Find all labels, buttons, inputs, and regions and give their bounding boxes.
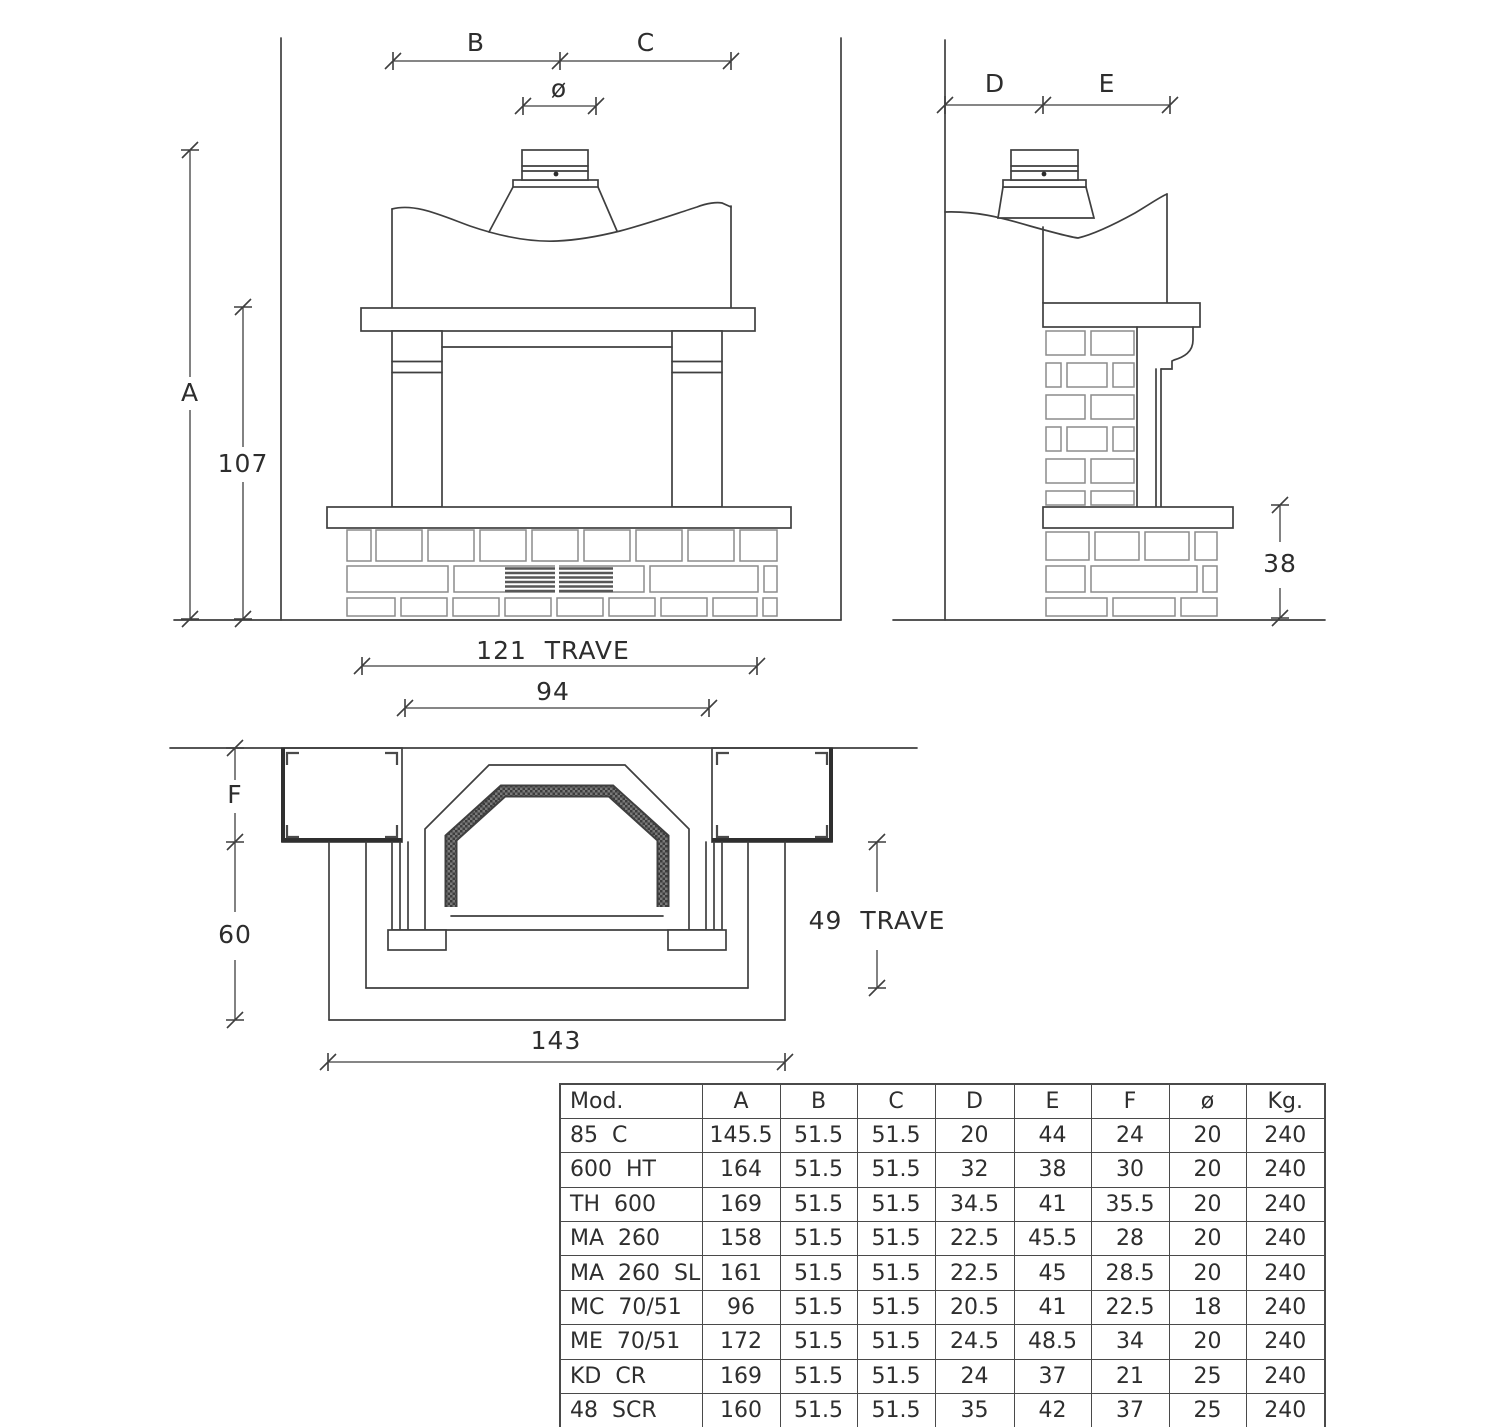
value-cell: 172 (702, 1325, 780, 1359)
value-cell: 161 (702, 1256, 780, 1290)
model-cell: 85 C (560, 1118, 702, 1152)
model-cell: MC 70/51 (560, 1290, 702, 1324)
value-cell: 28.5 (1091, 1256, 1169, 1290)
model-cell: ME 70/51 (560, 1325, 702, 1359)
value-cell: 24 (1091, 1118, 1169, 1152)
cone-right-edge (598, 187, 617, 231)
table-row: 600 HT16451.551.532383020240 (560, 1153, 1325, 1187)
dim-label-d: D (985, 69, 1005, 98)
table-header-row: Mod.ABCDEFøKg. (560, 1084, 1325, 1118)
value-cell: 51.5 (857, 1256, 935, 1290)
value-cell: 51.5 (780, 1222, 857, 1256)
value-cell: 42 (1014, 1394, 1091, 1427)
side-collar-dot (1042, 172, 1047, 177)
value-cell: 38 (1014, 1153, 1091, 1187)
table-row: ME 70/5117251.551.524.548.53420240 (560, 1325, 1325, 1359)
value-cell: 145.5 (702, 1118, 780, 1152)
model-cell: TH 600 (560, 1187, 702, 1221)
hood-top-wavy-edge (392, 203, 731, 242)
value-cell: 22.5 (935, 1222, 1014, 1256)
cone-left-edge (489, 187, 513, 232)
dim-label-38: 38 (1263, 549, 1297, 578)
dim-label-60: 60 (218, 920, 252, 949)
side-hearth-slab (1043, 507, 1233, 528)
table-row: 85 C145.551.551.520442420240 (560, 1118, 1325, 1152)
table-header-4: D (935, 1084, 1014, 1118)
table-row: KD CR16951.551.524372125240 (560, 1359, 1325, 1393)
value-cell: 24 (935, 1359, 1014, 1393)
front-view: B C ø A 107 121 TRAVE 94 (174, 28, 841, 717)
plan-left-block (282, 748, 402, 842)
value-cell: 18 (1169, 1290, 1246, 1324)
plan-right-column-footprint (668, 930, 726, 950)
value-cell: 37 (1014, 1359, 1091, 1393)
base-brick-row (347, 530, 777, 561)
table-row: MA 26015851.551.522.545.52820240 (560, 1222, 1325, 1256)
value-cell: 240 (1246, 1153, 1325, 1187)
dim-label-49-trave: 49 TRAVE (809, 906, 946, 935)
value-cell: 20 (1169, 1256, 1246, 1290)
model-cell: 600 HT (560, 1153, 702, 1187)
value-cell: 51.5 (857, 1359, 935, 1393)
value-cell: 51.5 (857, 1118, 935, 1152)
dim-label-e: E (1099, 69, 1116, 98)
flue-flange (513, 180, 598, 187)
value-cell: 51.5 (857, 1290, 935, 1324)
dim-label-f: F (227, 780, 242, 809)
flue-collar-dot (554, 172, 559, 177)
side-mantel-shelf (1043, 303, 1200, 327)
drawing-svg: B C ø A 107 121 TRAVE 94 (0, 0, 1500, 1080)
value-cell: 51.5 (780, 1290, 857, 1324)
fireplace-technical-drawing-page: B C ø A 107 121 TRAVE 94 (0, 0, 1500, 1427)
dim-label-c: C (637, 28, 655, 57)
plan-right-block (712, 748, 832, 842)
value-cell: 51.5 (780, 1359, 857, 1393)
value-cell: 240 (1246, 1256, 1325, 1290)
value-cell: 22.5 (1091, 1290, 1169, 1324)
table-header-2: B (780, 1084, 857, 1118)
value-cell: 164 (702, 1153, 780, 1187)
value-cell: 51.5 (857, 1394, 935, 1427)
value-cell: 20 (1169, 1118, 1246, 1152)
hearth-slab (327, 507, 791, 528)
left-column (392, 331, 442, 507)
value-cell: 21 (1091, 1359, 1169, 1393)
table-header-0: Mod. (560, 1084, 702, 1118)
value-cell: 51.5 (857, 1325, 935, 1359)
right-column (672, 331, 722, 507)
table-header-6: F (1091, 1084, 1169, 1118)
table-row: MA 260 SL16151.551.522.54528.520240 (560, 1256, 1325, 1290)
value-cell: 20 (1169, 1325, 1246, 1359)
table-row: TH 60016951.551.534.54135.520240 (560, 1187, 1325, 1221)
value-cell: 24.5 (935, 1325, 1014, 1359)
side-flue-flange (1003, 180, 1086, 187)
value-cell: 41 (1014, 1187, 1091, 1221)
dim-label-94: 94 (536, 677, 570, 706)
dim-label-a: A (181, 378, 199, 407)
table-header-5: E (1014, 1084, 1091, 1118)
value-cell: 51.5 (857, 1153, 935, 1187)
value-cell: 96 (702, 1290, 780, 1324)
value-cell: 20 (1169, 1187, 1246, 1221)
value-cell: 20 (935, 1118, 1014, 1152)
value-cell: 240 (1246, 1118, 1325, 1152)
value-cell: 51.5 (780, 1394, 857, 1427)
value-cell: 48.5 (1014, 1325, 1091, 1359)
table-row: MC 70/519651.551.520.54122.518240 (560, 1290, 1325, 1324)
value-cell: 22.5 (935, 1256, 1014, 1290)
dimension-table: Mod.ABCDEFøKg.85 C145.551.551.5204424202… (559, 1083, 1326, 1427)
value-cell: 30 (1091, 1153, 1169, 1187)
value-cell: 32 (935, 1153, 1014, 1187)
value-cell: 51.5 (857, 1222, 935, 1256)
value-cell: 240 (1246, 1394, 1325, 1427)
model-cell: MA 260 SL (560, 1256, 702, 1290)
dim-label-diameter: ø (551, 74, 567, 103)
value-cell: 28 (1091, 1222, 1169, 1256)
value-cell: 44 (1014, 1118, 1091, 1152)
base-brick-row (347, 598, 777, 616)
value-cell: 25 (1169, 1359, 1246, 1393)
dim-label-121-trave: 121 TRAVE (476, 636, 630, 665)
value-cell: 169 (702, 1359, 780, 1393)
value-cell: 37 (1091, 1394, 1169, 1427)
value-cell: 51.5 (780, 1118, 857, 1152)
table-header-3: C (857, 1084, 935, 1118)
value-cell: 34 (1091, 1325, 1169, 1359)
value-cell: 35.5 (1091, 1187, 1169, 1221)
table-header-7: ø (1169, 1084, 1246, 1118)
value-cell: 20 (1169, 1153, 1246, 1187)
value-cell: 45 (1014, 1256, 1091, 1290)
model-cell: MA 260 (560, 1222, 702, 1256)
table-header-8: Kg. (1246, 1084, 1325, 1118)
model-cell: 48 SCR (560, 1394, 702, 1427)
value-cell: 20 (1169, 1222, 1246, 1256)
side-base-bricks (1046, 532, 1217, 616)
firebox-lining-hatch (451, 791, 663, 907)
value-cell: 34.5 (935, 1187, 1014, 1221)
value-cell: 51.5 (780, 1325, 857, 1359)
table-header-1: A (702, 1084, 780, 1118)
dim-label-b: B (467, 28, 485, 57)
side-corbel-profile (1161, 327, 1193, 369)
value-cell: 240 (1246, 1290, 1325, 1324)
value-cell: 158 (702, 1222, 780, 1256)
value-cell: 51.5 (780, 1187, 857, 1221)
dim-label-107: 107 (218, 449, 269, 478)
dim-label-143: 143 (531, 1026, 582, 1055)
value-cell: 240 (1246, 1222, 1325, 1256)
value-cell: 240 (1246, 1325, 1325, 1359)
value-cell: 169 (702, 1187, 780, 1221)
value-cell: 51.5 (857, 1187, 935, 1221)
plan-left-column-footprint (388, 930, 446, 950)
plan-view: F 60 49 TRAVE 143 (170, 740, 945, 1071)
value-cell: 160 (702, 1394, 780, 1427)
mantel-shelf (361, 308, 755, 331)
base-brick-row (347, 566, 777, 592)
side-brick-column (1046, 331, 1134, 505)
side-view: D E 38 (893, 40, 1325, 626)
side-cone (998, 187, 1094, 218)
value-cell: 51.5 (780, 1256, 857, 1290)
value-cell: 240 (1246, 1359, 1325, 1393)
value-cell: 41 (1014, 1290, 1091, 1324)
value-cell: 35 (935, 1394, 1014, 1427)
value-cell: 240 (1246, 1187, 1325, 1221)
value-cell: 20.5 (935, 1290, 1014, 1324)
value-cell: 25 (1169, 1394, 1246, 1427)
value-cell: 51.5 (780, 1153, 857, 1187)
model-cell: KD CR (560, 1359, 702, 1393)
value-cell: 45.5 (1014, 1222, 1091, 1256)
table-row: 48 SCR16051.551.535423725240 (560, 1394, 1325, 1427)
